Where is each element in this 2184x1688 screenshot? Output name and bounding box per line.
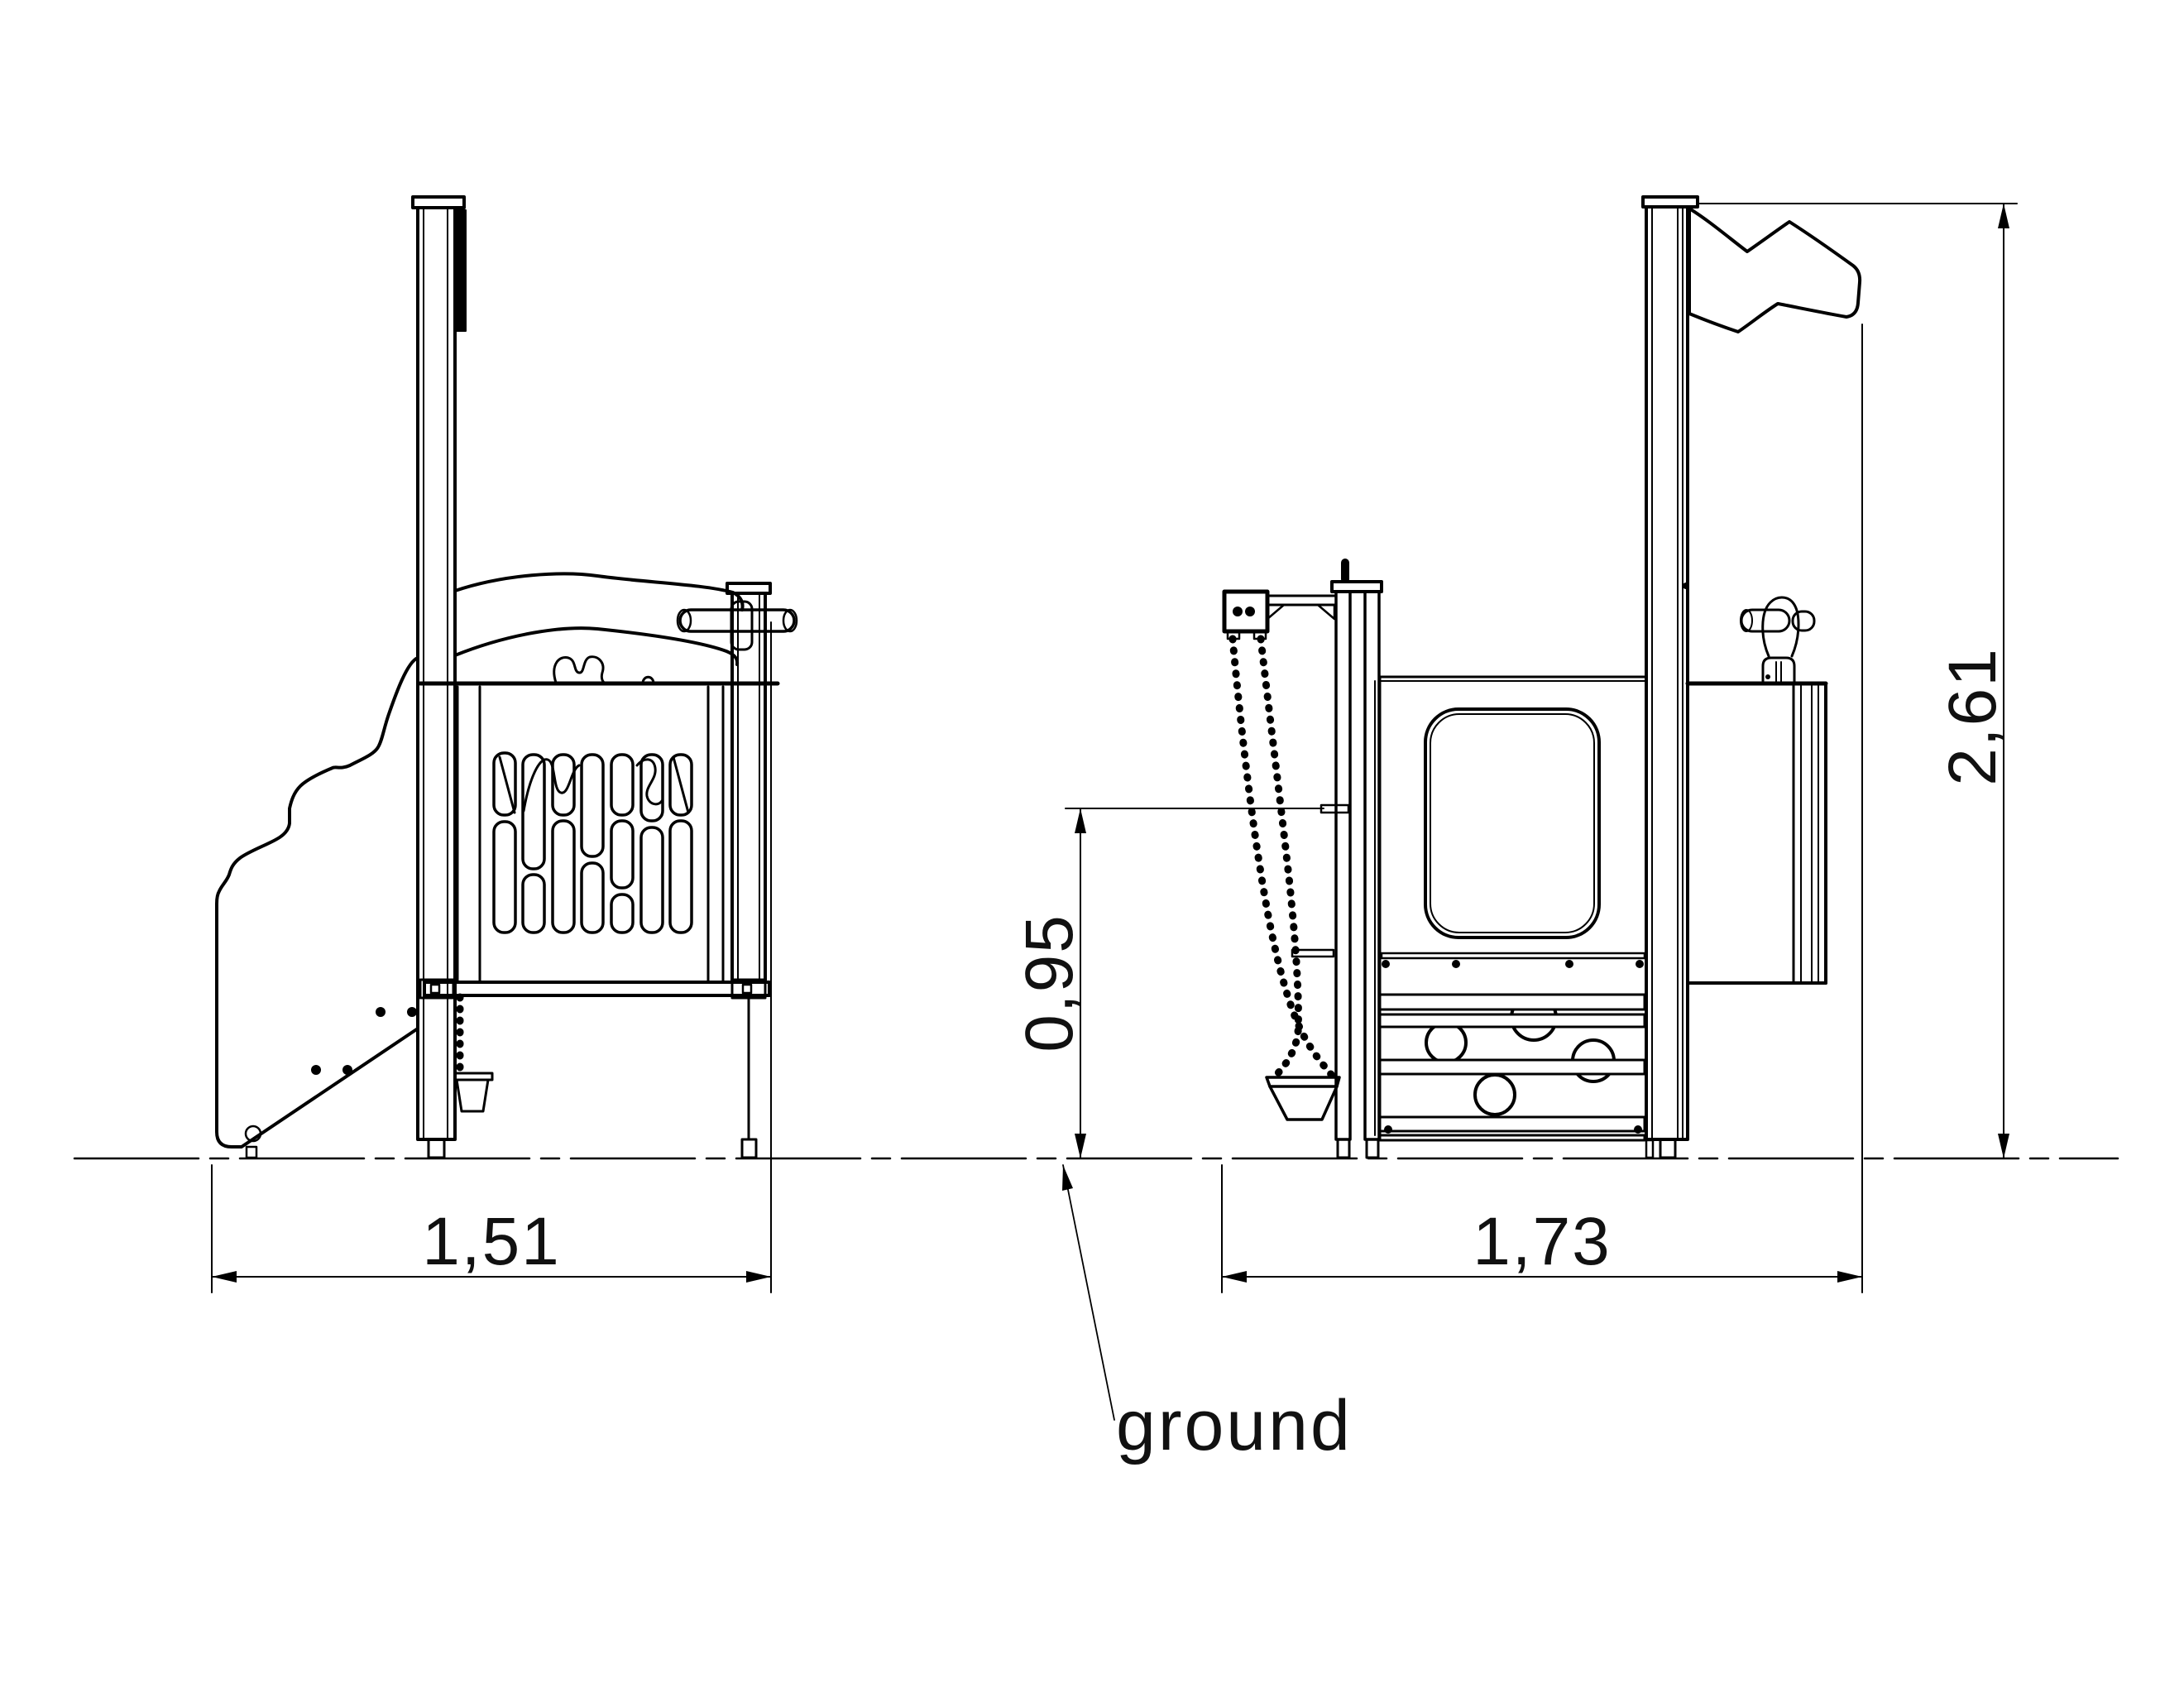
dim-text-platform-height: 0,95 [1012,914,1087,1053]
dim-text-front-width: 1,73 [1473,1204,1612,1279]
ground-leader [1062,1165,1114,1420]
front-flag [1689,209,1860,332]
side-deck-squiggle [554,657,654,683]
side-flag-edge [457,210,466,331]
dim-text-side-width: 1,51 [422,1204,561,1279]
side-flagpole-post [413,197,464,1158]
front-flower-pot [1267,1077,1339,1120]
side-view [217,197,797,1158]
porthole-window [1425,709,1599,938]
front-left-posts [1292,559,1382,1158]
drawing-sheet: 1,51 1,73 0,95 2,61 ground [0,0,2184,1688]
ground-label: ground [1116,1386,1353,1465]
front-chains [1233,639,1334,1077]
front-view [1224,197,1860,1158]
front-flagpole-post [1643,197,1698,1158]
front-slats [1380,995,1645,1140]
front-hanger-box [1224,592,1334,639]
dim-side-width [212,622,771,1292]
front-binocular-toy [1741,597,1814,683]
panel-slots [494,753,692,933]
dim-text-overall-height: 2,61 [1935,647,2010,786]
front-slide-edge [1688,683,1826,983]
side-front-post [727,583,770,1158]
panel-bolts [1382,960,1644,968]
side-lower-beam [420,980,769,998]
panel-squiggles [500,757,688,813]
side-arch-panel [455,573,743,664]
side-step-bucket [455,997,492,1111]
side-stair-panel [217,658,418,1158]
technical-drawing: 1,51 1,73 0,95 2,61 ground [0,0,2184,1688]
side-slotted-panel [457,687,723,982]
